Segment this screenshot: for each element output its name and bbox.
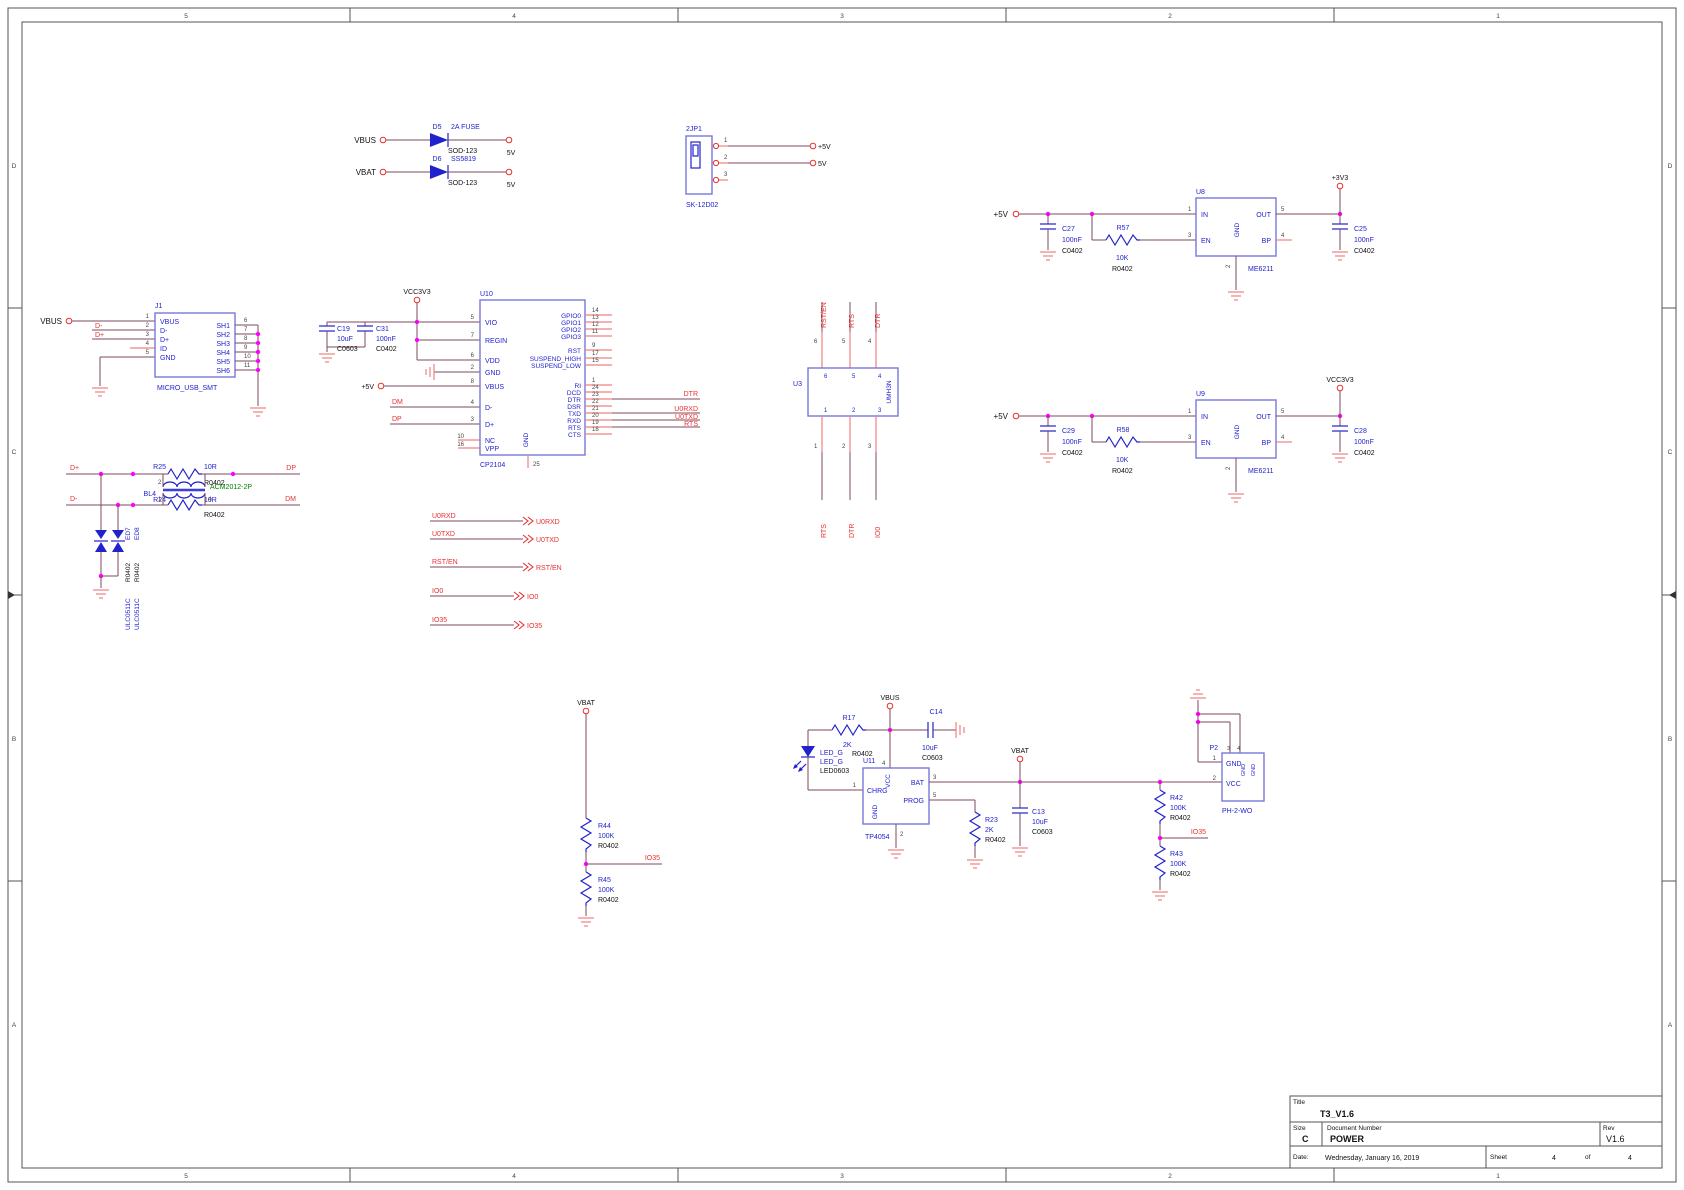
left-center-marker (8, 591, 15, 599)
j1-pin7-num: 7 (244, 327, 248, 333)
ed7-part: ULC0511C (125, 598, 132, 630)
jp1-pin2-num: 2 (724, 155, 728, 161)
u3-pin1-num-out: 1 (814, 444, 818, 450)
j1-pin3-num: 3 (146, 332, 150, 338)
zone-col-5-top: 5 (184, 13, 188, 20)
u10-pin-gpio0: GPIO0 (561, 313, 581, 320)
u9-pin5-num: 5 (1281, 409, 1285, 415)
p2-pin4-gnd: GND (1251, 764, 1257, 776)
port-u0rxd-right: U0RXD (536, 519, 560, 526)
title-label: Title (1293, 1099, 1305, 1106)
r58-ref: R58 (1117, 427, 1130, 434)
u10-pin8-num: 8 (471, 379, 475, 385)
c28-ground-symbol (1332, 454, 1348, 462)
c31-capacitor (357, 326, 373, 331)
p2-ref: P2 (1209, 745, 1218, 752)
u10-pin-gnd-bottom: GND (523, 432, 530, 447)
r42-resistor (1155, 790, 1165, 824)
d6-value: SS5819 (451, 156, 476, 163)
u8-ground-symbol (1228, 292, 1244, 300)
sheet-label: Sheet (1490, 1154, 1507, 1161)
u10-pin14-num: 14 (592, 308, 599, 314)
r25-resistor (168, 469, 202, 479)
zone-row-b-right: B (1668, 736, 1672, 743)
c25-footprint: C0402 (1354, 248, 1375, 255)
u10-pin20-num: 20 (592, 413, 599, 419)
u10-pin5-num: 5 (471, 315, 475, 321)
u10-pin-dcd: DCD (567, 390, 581, 397)
u3-pin2-num-out: 2 (842, 444, 846, 450)
schematic-page: 5 4 3 2 1 5 4 3 2 1 D C B A D C B A VBUS… (0, 0, 1684, 1190)
u11-pin4-num: 4 (882, 761, 886, 767)
divider-vbat-label: VBAT (577, 700, 595, 707)
c28-footprint: C0402 (1354, 450, 1375, 457)
u3-part: UMH3N (886, 380, 893, 403)
c19-value: 10uF (337, 336, 353, 343)
u10-pin-suspend-high: SUSPEND_HIGH (530, 356, 582, 363)
u9-ref: U9 (1196, 391, 1205, 398)
u9-part: ME6211 (1248, 468, 1274, 475)
r57-footprint: R0402 (1112, 266, 1133, 273)
u10-vcc3v3-label: VCC3V3 (403, 289, 430, 296)
vbat-net-label: VBAT (356, 168, 376, 177)
r44-ref: R44 (598, 823, 611, 830)
charger-block: VBUS R17 2K R0402 LED_G LED_G LED0603 C1… (793, 690, 1264, 900)
u9-pin-en: EN (1201, 440, 1211, 447)
jp1-net-5v: 5V (818, 161, 827, 168)
zone-col-2-bot: 2 (1168, 1173, 1172, 1180)
filter-dp-out-net: DP (286, 465, 296, 472)
u3-rst-en-net-top: RST/EN (821, 302, 828, 328)
d5-5v-label: 5V (507, 150, 516, 157)
u10-pin-txd: TXD (568, 411, 581, 418)
diode-d5 (430, 133, 448, 147)
u10-pin-gpio1: GPIO1 (561, 320, 581, 327)
c27-value: 100nF (1062, 237, 1082, 244)
j1-vbus-net: VBUS (40, 317, 62, 326)
u10-pin17-num: 17 (592, 351, 599, 357)
zone-col-3-bot: 3 (840, 1173, 844, 1180)
j1-pin-sh5: SH5 (216, 359, 230, 366)
u8-pin-bp: BP (1262, 238, 1272, 245)
io35-port-connector (514, 621, 524, 629)
c28-capacitor (1332, 426, 1348, 431)
c19-capacitor (319, 326, 335, 331)
d5-footprint: SOD-123 (448, 148, 477, 155)
zone-row-a-right: A (1668, 1022, 1673, 1029)
p2-pin1-num: 1 (1213, 756, 1217, 762)
u0txd-port-connector (523, 535, 533, 543)
r42-footprint: R0402 (1170, 815, 1191, 822)
u10-pin23-num: 23 (592, 392, 599, 398)
u10-pin-ri: RI (575, 383, 582, 390)
j1-pin6-num: 6 (244, 318, 248, 324)
c13-footprint: C0603 (1032, 829, 1053, 836)
j1-pin4-num: 4 (146, 341, 150, 347)
u9-pin-out: OUT (1256, 414, 1272, 421)
zone-col-5-bot: 5 (184, 1173, 188, 1180)
size-label: Size (1293, 1125, 1306, 1132)
u10-pin-rxd: RXD (567, 418, 581, 425)
p2-part: PH-2-WO (1222, 808, 1253, 815)
j1-dp-net: D+ (95, 332, 104, 339)
r58-value: 10K (1116, 457, 1129, 464)
led-ref: LED_G (820, 750, 843, 757)
jp1-body (686, 136, 712, 194)
c29-footprint: C0402 (1062, 450, 1083, 457)
port-rst-en-left: RST/EN (432, 559, 458, 566)
bl4-ref: BL4 (144, 491, 157, 498)
jp1-5v-in-terminal (810, 143, 816, 149)
c13-ground-symbol (1012, 848, 1028, 856)
u10-pin12-num: 12 (592, 322, 599, 328)
r43-ground-symbol (1152, 892, 1168, 900)
divider-io35-net: IO35 (645, 855, 660, 862)
zone-col-2-top: 2 (1168, 13, 1172, 20)
rev-label: Rev (1603, 1125, 1615, 1132)
r57-resistor (1106, 235, 1140, 245)
p2-pin3-num: 3 (1227, 746, 1230, 752)
schematic-title: T3_V1.6 (1320, 1109, 1354, 1119)
u10-dm-net: DM (392, 399, 403, 406)
u8-pin3-num: 3 (1188, 233, 1192, 239)
u10-pin19-num: 19 (592, 420, 599, 426)
u9-pin2-num: 2 (1226, 466, 1232, 470)
d6-ref: D6 (433, 156, 442, 163)
r24-footprint: R0402 (204, 512, 225, 519)
u8-pin2-num: 2 (1226, 264, 1232, 268)
j1-pin-vbus: VBUS (160, 319, 179, 326)
u10-dtr-net: DTR (684, 391, 698, 398)
esd-ground-symbol (93, 590, 109, 598)
u10-pin24-num: 24 (592, 385, 599, 391)
u10-pin13-num: 13 (592, 315, 599, 321)
r23-resistor (970, 812, 980, 846)
c29-ref: C29 (1062, 428, 1075, 435)
u8-pin-in: IN (1201, 212, 1208, 219)
u10-pin-dm: D- (485, 405, 493, 412)
docnum-value: POWER (1330, 1134, 1365, 1144)
u10-pin-cts: CTS (568, 432, 582, 439)
u8-5v-label: +5V (994, 210, 1009, 219)
r57-value: 10K (1116, 255, 1129, 262)
vbat-terminal (380, 169, 386, 175)
c19-footprint: C0603 (337, 346, 358, 353)
c31-footprint: C0402 (376, 346, 397, 353)
u10-pin-vpp: VPP (485, 446, 499, 453)
c29-value: 100nF (1062, 439, 1082, 446)
c13-ref: C13 (1032, 809, 1045, 816)
u11-pin2-num: 2 (900, 832, 904, 838)
p2-pin3-gnd: GND (1241, 764, 1247, 776)
u11-pin1-num: 1 (853, 783, 857, 789)
u10-pin-rst: RST (568, 348, 581, 355)
zone-row-c-right: C (1668, 449, 1673, 456)
p2-pin2-num: 2 (1213, 776, 1217, 782)
u10-5v-label: +5V (361, 384, 374, 391)
jp1-ref: 2JP1 (686, 126, 702, 133)
j1-pin-sh6: SH6 (216, 368, 230, 375)
u9-pin-bp: BP (1262, 440, 1272, 447)
bl4-choke (163, 474, 205, 505)
u8-pin1-num: 1 (1188, 207, 1192, 213)
u10-pin-rts: RTS (568, 425, 582, 432)
umh3n-block: RST/EN RTS DTR 6 5 4 U3 6 5 4 1 2 3 UMH3… (793, 302, 898, 538)
j1-pin-sh4: SH4 (216, 350, 230, 357)
u10-pin-dtr: DTR (568, 397, 582, 404)
c31-ref: C31 (376, 326, 389, 333)
u8-ref: U8 (1196, 189, 1205, 196)
d5-5v-terminal (506, 137, 512, 143)
title-block: Title T3_V1.6 Size C Document Number POW… (1290, 1096, 1662, 1168)
r45-ref: R45 (598, 877, 611, 884)
diode-d6 (430, 165, 448, 179)
c14-ref: C14 (930, 709, 943, 716)
d6-5v-terminal (506, 169, 512, 175)
ed8-part: ULC0511C (134, 598, 141, 630)
u9-pin3-num: 3 (1188, 435, 1192, 441)
u10-ref: U10 (480, 291, 493, 298)
c29-ground-symbol (1040, 454, 1056, 462)
u8-pin4-num: 4 (1281, 233, 1285, 239)
u8-3v3-terminal (1337, 183, 1343, 189)
size-value: C (1302, 1134, 1309, 1144)
rev-value: V1.6 (1606, 1134, 1625, 1144)
j1-pin2-num: 2 (146, 323, 150, 329)
c27-footprint: C0402 (1062, 248, 1083, 255)
u10-pin21-num: 21 (592, 406, 599, 412)
c28-ref: C28 (1354, 428, 1367, 435)
u9-ground-symbol (1228, 494, 1244, 502)
u3-ref: U3 (793, 381, 802, 388)
ed7-tvs-diode (94, 530, 108, 552)
u10-pin2-num: 2 (471, 365, 475, 371)
u8-pin5-num: 5 (1281, 207, 1285, 213)
r44-resistor (581, 818, 591, 852)
u10-pin25-num: 25 (533, 462, 540, 468)
zone-col-4-top: 4 (512, 13, 516, 20)
u10-pin7-num: 7 (471, 333, 475, 339)
filter-dp-in-net: D+ (70, 465, 79, 472)
j1-pin-sh3: SH3 (216, 341, 230, 348)
r17-footprint: R0402 (852, 751, 873, 758)
r58-footprint: R0402 (1112, 468, 1133, 475)
rst-en-port-connector (523, 563, 533, 571)
j1-dm-net: D- (95, 323, 103, 330)
port-u0rxd-left: U0RXD (432, 513, 456, 520)
port-io35-left: IO35 (432, 617, 447, 624)
jp1-net-plus5v: +5V (818, 144, 831, 151)
u11-pin3-num: 3 (933, 775, 937, 781)
page-border: 5 4 3 2 1 5 4 3 2 1 D C B A D C B A (8, 8, 1676, 1182)
regulator-u9-block: +5V C29 100nF C0402 R58 10K R0402 U9 IN … (994, 377, 1375, 502)
j1-part: MICRO_USB_SMT (157, 385, 218, 392)
r42-ref: R42 (1170, 795, 1183, 802)
c14-capacitor (928, 722, 933, 738)
j1-pin9-num: 9 (244, 345, 248, 351)
r44-value: 100K (598, 833, 615, 840)
vbus-net-label: VBUS (354, 136, 376, 145)
u10-pin-gpio2: GPIO2 (561, 327, 581, 334)
j1-pin-dp: D+ (160, 337, 169, 344)
u11-pin-vcc: VCC (885, 774, 892, 788)
r43-resistor (1155, 846, 1165, 880)
u11-ref: U11 (863, 758, 875, 765)
zone-col-1-bot: 1 (1496, 1173, 1500, 1180)
u10-pin-gnd: GND (485, 370, 501, 377)
zone-col-1-top: 1 (1496, 13, 1500, 20)
u10-pin-regin: REGIN (485, 338, 507, 345)
j1-pin-sh2: SH2 (216, 332, 230, 339)
fuse-block: VBUS D5 2A FUSE SOD-123 5V VBAT D6 SS581… (354, 124, 515, 189)
j1-ref: J1 (155, 303, 163, 310)
zone-row-d-right: D (1668, 163, 1673, 170)
bl4-pin2-num: 2 (158, 480, 162, 486)
date-value: Wednesday, January 16, 2019 (1325, 1155, 1419, 1162)
port-io0-left: IO0 (432, 588, 443, 595)
ed7-footprint: R0402 (125, 562, 132, 582)
r42-io35-net: IO35 (1191, 829, 1206, 836)
u9-5v-label: +5V (994, 412, 1009, 421)
p2-pin-gnd: GND (1226, 761, 1242, 768)
u8-pin-en: EN (1201, 238, 1211, 245)
u10-pin3-num: 3 (471, 417, 475, 423)
u3-dtr-net-bottom: DTR (849, 524, 856, 538)
u8-part: ME6211 (1248, 266, 1274, 273)
c27-capacitor (1040, 224, 1056, 229)
power-switch-block: 2JP1 1 2 3 +5V 5V SK-12D02 (686, 126, 831, 209)
u3-pin5-num-out: 5 (842, 339, 846, 345)
port-u0txd-right: U0TXD (536, 537, 559, 544)
jp1-pin1-num: 1 (724, 138, 728, 144)
u10-pin-suspend-low: SUSPEND_LOW (531, 363, 582, 370)
p2-pin4-num: 4 (1237, 746, 1240, 752)
charger-vbat-label: VBAT (1011, 748, 1029, 755)
p2-pin-vcc: VCC (1226, 781, 1241, 788)
r23-footprint: R0402 (985, 837, 1006, 844)
r25-ref: R25 (153, 464, 166, 471)
docnum-label: Document Number (1327, 1125, 1382, 1132)
u11-pin-prog: PROG (903, 798, 924, 805)
signal-ports-block: U0RXD U0RXD U0TXD U0TXD RST/EN RST/EN IO… (430, 513, 562, 630)
r23-ref: R23 (985, 817, 998, 824)
u10-pin10-num: 10 (457, 434, 464, 440)
j1-pin5-num: 5 (146, 350, 150, 356)
u3-pin3-num-out: 3 (868, 444, 872, 450)
u11-part: TP4054 (865, 834, 890, 841)
zone-col-4-bot: 4 (512, 1173, 516, 1180)
r57-ref: R57 (1117, 225, 1130, 232)
c13-capacitor (1012, 808, 1028, 813)
sheet-number: 4 (1552, 1155, 1556, 1162)
r45-value: 100K (598, 887, 615, 894)
sheet-total: 4 (1628, 1155, 1632, 1162)
cp2104-block: VCC3V3 C19 10uF C0603 C31 100nF C0402 +5… (319, 289, 700, 469)
d5-value: 2A FUSE (451, 124, 480, 131)
j1-pin-sh1: SH1 (216, 323, 230, 330)
r43-value: 100K (1170, 861, 1187, 868)
r17-value: 2K (843, 742, 852, 749)
r25-value: 10R (204, 464, 217, 471)
c27-ref: C27 (1062, 226, 1075, 233)
c25-ground-symbol (1332, 252, 1348, 260)
u10-pin4-num: 4 (471, 400, 475, 406)
zone-row-d-left: D (12, 163, 17, 170)
port-u0txd-left: U0TXD (432, 531, 455, 538)
u3-dtr-net-top: DTR (875, 314, 882, 328)
r23-value: 2K (985, 827, 994, 834)
charge-led (793, 746, 815, 772)
bl4-part: ACM2012-2P (210, 484, 252, 491)
port-io0-right: IO0 (527, 594, 538, 601)
j1-pin-gnd: GND (160, 355, 176, 362)
u10-pin1-num: 1 (592, 378, 596, 384)
r17-ref: R17 (843, 715, 856, 722)
u8-3v3-label: +3V3 (1332, 175, 1349, 182)
filter-dm-in-net: D- (70, 496, 78, 503)
c19-ref: C19 (337, 326, 350, 333)
j1-pin-dm: D- (160, 328, 168, 335)
u11-pin-chrg: CHRG (867, 788, 888, 795)
r43-footprint: R0402 (1170, 871, 1191, 878)
u8-pin-gnd: GND (1234, 222, 1241, 237)
j1-ground-symbol (92, 388, 108, 396)
j1-pin1-num: 1 (146, 314, 150, 320)
c14-value: 10uF (922, 745, 938, 752)
j1-pin8-num: 8 (244, 336, 248, 342)
c25-value: 100nF (1354, 237, 1374, 244)
jp1-5v-out-terminal (810, 160, 816, 166)
c13-value: 10uF (1032, 819, 1048, 826)
u10-pin6-num: 6 (471, 353, 475, 359)
usb-filter-block: D+ R25 10R R0402 DP D- R24 10R R0402 DM … (66, 464, 300, 630)
zone-col-3-top: 3 (840, 13, 844, 20)
u10-pin-dp: D+ (485, 422, 494, 429)
ed8-ref: ED8 (134, 527, 141, 540)
c19-ground-symbol (319, 354, 335, 362)
u10-pin-nc: NC (485, 438, 495, 445)
right-center-marker (1669, 591, 1676, 599)
d5-ref: D5 (433, 124, 442, 131)
u9-pin4-num: 4 (1281, 435, 1285, 441)
ed8-footprint: R0402 (134, 562, 141, 582)
vbat-divider-block: VBAT IO35 R44 100K R0402 R45 100K R0402 (577, 700, 662, 926)
r42-value: 100K (1170, 805, 1187, 812)
d6-5v-label: 5V (507, 182, 516, 189)
zone-row-a-left: A (12, 1022, 17, 1029)
c28-value: 100nF (1354, 439, 1374, 446)
u10-pin9-num: 9 (592, 343, 596, 349)
j1-pin-id: ID (160, 346, 167, 353)
u10-pin-gpio3: GPIO3 (561, 334, 581, 341)
u9-pin-gnd: GND (1234, 424, 1241, 439)
u3-rts-net-top: RTS (849, 314, 856, 328)
u10-part: CP2104 (480, 462, 505, 469)
c14-ground-symbol (956, 722, 964, 738)
u3-rts-net-bottom: RTS (821, 524, 828, 538)
led-value: LED_G (820, 759, 843, 766)
u3-pin4-num-out: 4 (868, 339, 872, 345)
u9-vcc3v3-label: VCC3V3 (1326, 377, 1353, 384)
u10-u0txd-net: U0TXD (675, 414, 698, 421)
u10-pin15-num: 15 (592, 358, 599, 364)
c25-ref: C25 (1354, 226, 1367, 233)
u10-gnd-pin-symbol (426, 364, 434, 380)
r44-footprint: R0402 (598, 843, 619, 850)
u10-pin16-num: 16 (457, 442, 464, 448)
r45-resistor (581, 872, 591, 906)
port-rst-en-right: RST/EN (536, 565, 562, 572)
